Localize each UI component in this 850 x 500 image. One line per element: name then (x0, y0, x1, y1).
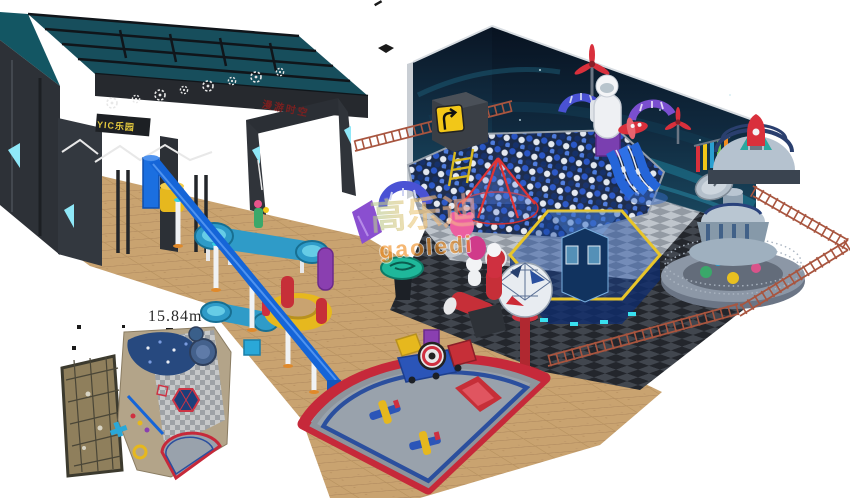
watermark: 高乐迪 gaoledi (338, 190, 512, 267)
plan-fan-zone (162, 433, 220, 478)
dimension-tick (77, 325, 81, 329)
sphere-pole (520, 315, 530, 370)
plan-main-area (108, 327, 231, 478)
dimension-tick (72, 346, 76, 350)
red-capsule-column (316, 298, 327, 324)
small-mark (374, 0, 382, 6)
playground-render: YIC乐园 漫游时空 15.84m 高乐迪 gaoledi (0, 0, 850, 500)
traffic-sign-cube (432, 92, 488, 152)
hexagon-center-tower (562, 228, 608, 302)
blue-cube (244, 340, 260, 355)
diamond-mark (378, 44, 394, 53)
dimension-label: 15.84m (148, 308, 202, 326)
table-toy-tower (254, 208, 263, 228)
red-capsule-column (281, 276, 294, 308)
dimension-tick (122, 325, 125, 328)
plan-trampoline-grid (62, 356, 122, 476)
floor-plan-inset (62, 325, 231, 478)
purple-column (318, 248, 333, 290)
